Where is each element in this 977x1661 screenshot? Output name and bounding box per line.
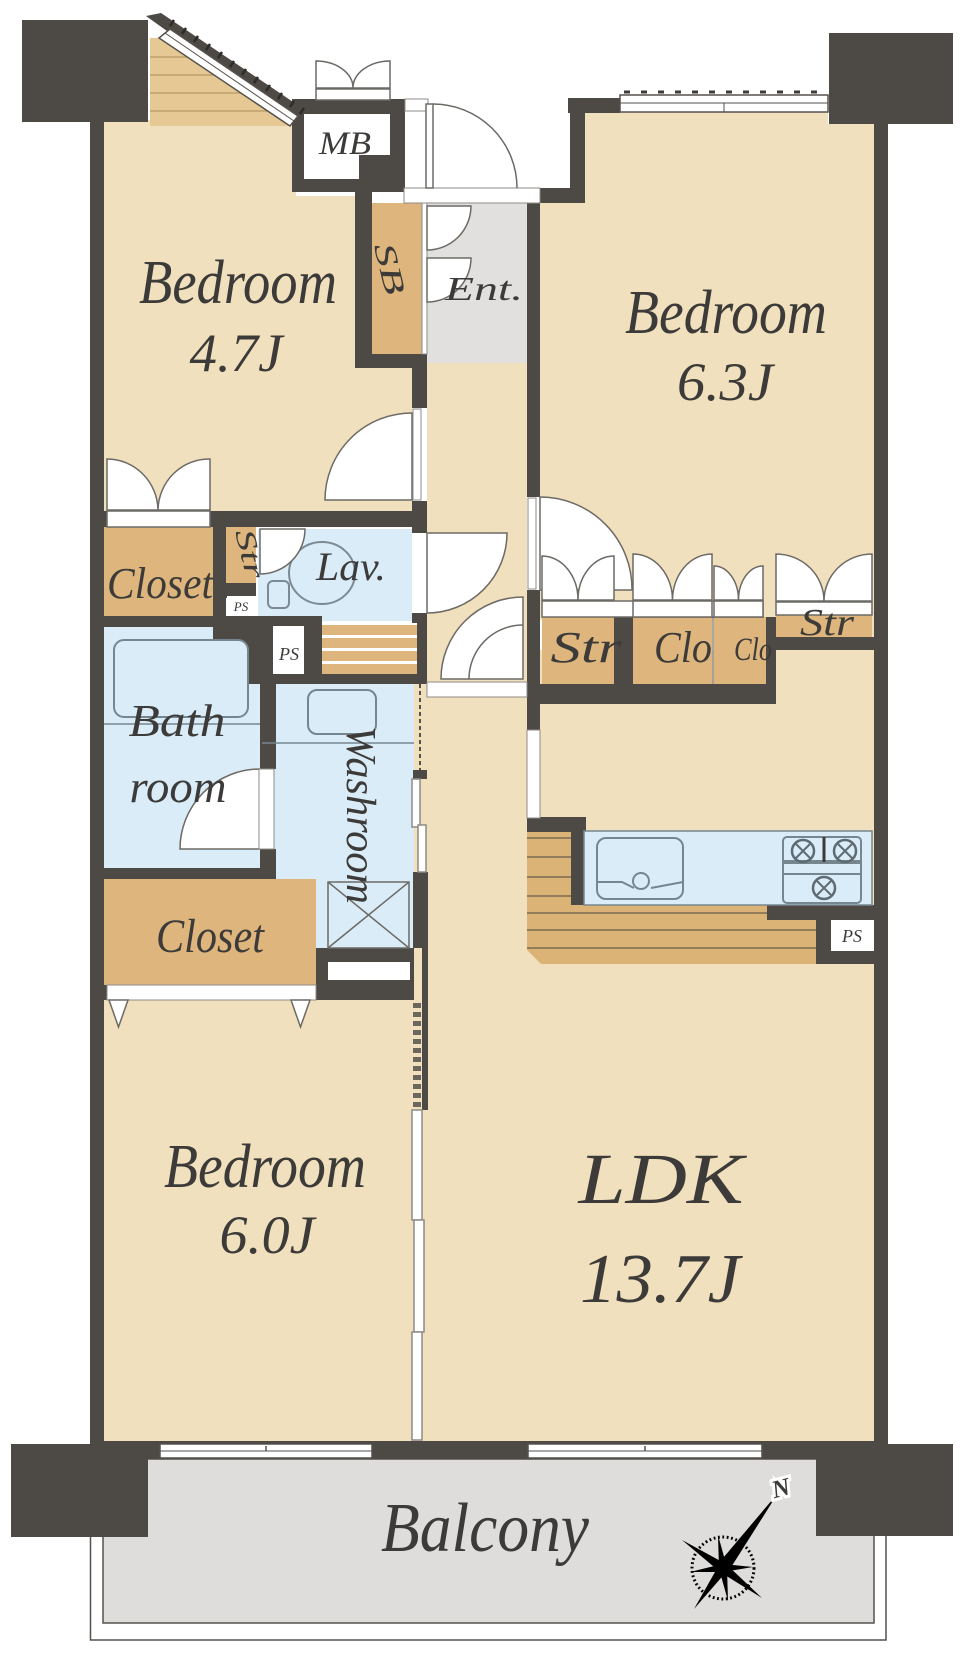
svg-text:Closet: Closet	[107, 559, 215, 608]
svg-text:Bedroom: Bedroom	[139, 249, 337, 317]
svg-text:Balcony: Balcony	[381, 1490, 590, 1567]
svg-text:Bedroom: Bedroom	[164, 1133, 366, 1201]
svg-text:room: room	[130, 761, 227, 812]
svg-text:Washroom: Washroom	[337, 726, 383, 904]
svg-text:LDK: LDK	[577, 1139, 748, 1219]
svg-text:Str: Str	[551, 623, 623, 672]
svg-text:13.7J: 13.7J	[580, 1241, 743, 1318]
svg-text:Lav.: Lav.	[315, 544, 386, 589]
svg-text:Bath: Bath	[129, 695, 226, 746]
svg-text:4.7J: 4.7J	[190, 323, 286, 383]
svg-text:Clo: Clo	[654, 623, 712, 672]
svg-text:Str: Str	[800, 602, 854, 644]
svg-text:Bedroom: Bedroom	[625, 279, 827, 347]
svg-text:PS: PS	[278, 644, 299, 664]
svg-text:PS: PS	[841, 926, 862, 946]
svg-text:Ent.: Ent.	[444, 271, 523, 308]
svg-text:Closet: Closet	[156, 910, 265, 963]
svg-text:MB: MB	[318, 126, 371, 162]
svg-text:6.3J: 6.3J	[677, 352, 776, 412]
svg-text:Clo: Clo	[734, 632, 772, 668]
svg-text:6.0J: 6.0J	[220, 1205, 318, 1265]
svg-text:PS: PS	[233, 599, 249, 614]
